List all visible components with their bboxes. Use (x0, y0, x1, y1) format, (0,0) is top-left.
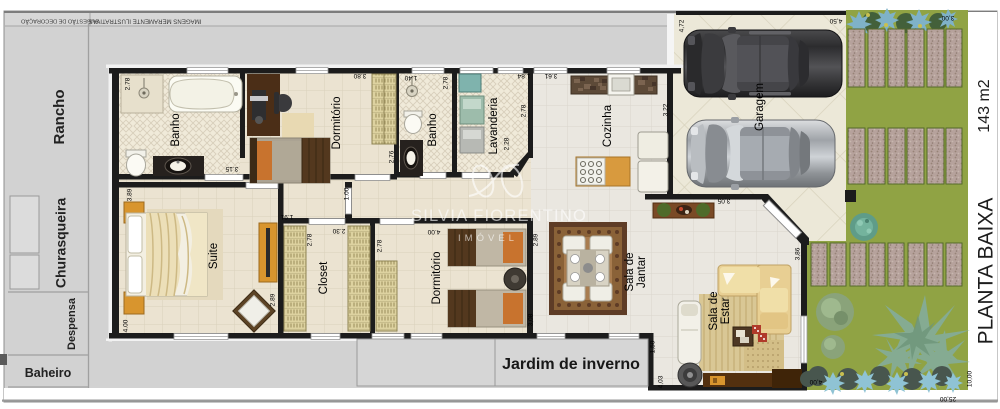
svg-text:3.15: 3.15 (225, 165, 238, 172)
svg-text:PLANTA BAIXA: PLANTA BAIXA (975, 198, 998, 345)
svg-text:Despensa: Despensa (66, 297, 78, 350)
svg-text:Dormitório: Dormitório (331, 96, 343, 149)
svg-text:3,00: 3,00 (941, 14, 954, 21)
svg-text:10,00: 10,00 (967, 370, 974, 387)
svg-text:2.76: 2.76 (389, 150, 396, 163)
svg-text:Garagem: Garagem (754, 83, 766, 131)
svg-text:Jantar: Jantar (636, 256, 648, 288)
svg-text:4.00: 4.00 (123, 319, 130, 332)
svg-text:1,50: 1,50 (650, 340, 657, 353)
svg-text:2.78: 2.78 (443, 76, 450, 89)
svg-text:Rancho: Rancho (51, 89, 68, 144)
svg-text:2.89: 2.89 (533, 233, 540, 246)
svg-text:2.78: 2.78 (125, 77, 132, 90)
svg-text:3,08: 3,08 (528, 313, 535, 326)
svg-text:Sala de: Sala de (624, 252, 636, 291)
svg-text:Closet: Closet (318, 261, 330, 294)
svg-text:2.78: 2.78 (521, 104, 528, 117)
svg-text:2.28: 2.28 (504, 137, 511, 150)
svg-text:2.30: 2.30 (332, 227, 345, 234)
svg-text:3.22: 3.22 (663, 103, 670, 116)
svg-text:1.00: 1.00 (344, 187, 351, 200)
svg-text:25,00: 25,00 (939, 395, 956, 402)
svg-text:3,86: 3,86 (795, 247, 802, 260)
svg-text:Baheiro: Baheiro (25, 366, 72, 380)
svg-text:1.40: 1.40 (404, 74, 417, 81)
svg-text:Estar: Estar (720, 297, 732, 324)
svg-text:3,05: 3,05 (717, 197, 730, 204)
svg-text:4,00: 4,00 (809, 378, 822, 385)
svg-text:Lavanderia: Lavanderia (488, 97, 500, 155)
svg-text:Cozinha: Cozinha (602, 104, 614, 147)
svg-text:SILVIA FIORENTINO: SILVIA FIORENTINO (411, 207, 587, 225)
svg-text:3.80: 3.80 (353, 72, 366, 79)
svg-text:2.89: 2.89 (270, 293, 277, 306)
svg-text:Banho: Banho (427, 113, 439, 146)
svg-text:Dormitório: Dormitório (431, 251, 443, 304)
svg-text:1.84: 1.84 (517, 72, 530, 79)
svg-text:Churasqueira: Churasqueira (53, 198, 69, 288)
svg-text:4,03: 4,03 (658, 375, 665, 388)
svg-text:SUGESTÃO DE DECORAÇÃO: SUGESTÃO DE DECORAÇÃO (20, 18, 99, 25)
svg-text:Jardim de inverno: Jardim de inverno (502, 356, 640, 373)
svg-text:2.78: 2.78 (377, 239, 384, 252)
svg-text:4.00: 4.00 (427, 228, 440, 235)
svg-text:IMÓVEL: IMÓVEL (458, 233, 518, 244)
svg-text:Suite: Suite (208, 243, 220, 269)
svg-text:1.91: 1.91 (280, 213, 293, 220)
svg-text:3.61: 3.61 (544, 72, 557, 79)
svg-text:143 m2: 143 m2 (976, 79, 993, 132)
svg-text:4,50: 4,50 (829, 17, 842, 24)
svg-text:3.89: 3.89 (127, 188, 134, 201)
svg-text:2.78: 2.78 (307, 233, 314, 246)
svg-text:IMAGENS MERAMENTE ILUSTRATIVAS: IMAGENS MERAMENTE ILUSTRATIVAS (89, 17, 202, 24)
svg-text:4,72: 4,72 (679, 19, 686, 32)
svg-text:Banho: Banho (170, 113, 182, 146)
svg-text:Sala de: Sala de (708, 291, 720, 330)
